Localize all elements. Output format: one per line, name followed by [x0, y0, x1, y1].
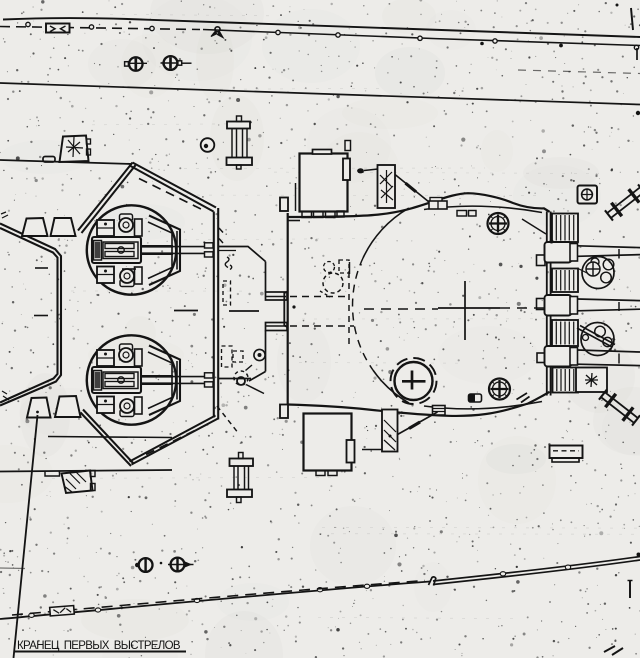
- svg-text:КРАНЕЦ ПЕРВЫХ ВЫСТРЕЛОВ: КРАНЕЦ ПЕРВЫХ ВЫСТРЕЛОВ: [17, 640, 181, 652]
